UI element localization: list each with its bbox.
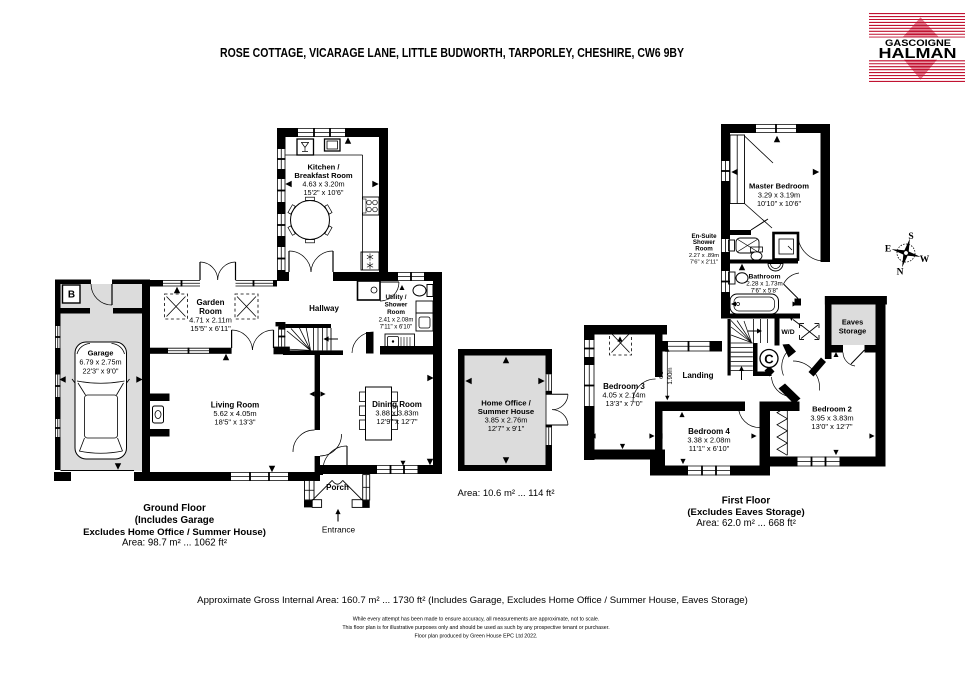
svg-text:18'5" x 13'3": 18'5" x 13'3" [214, 418, 255, 427]
svg-text:Room: Room [387, 309, 405, 316]
svg-text:Garage: Garage [88, 349, 114, 358]
svg-text:11'1" x 6'10": 11'1" x 6'10" [689, 444, 730, 453]
svg-text:Hallway: Hallway [309, 304, 339, 313]
svg-text:This floor plan is for illustr: This floor plan is for illustrative purp… [342, 625, 609, 631]
svg-text:10'10" x 10'6": 10'10" x 10'6" [757, 199, 801, 208]
svg-text:7'11" x 6'10": 7'11" x 6'10" [380, 325, 412, 331]
svg-text:Area: 98.7 m² ... 1062 ft²: Area: 98.7 m² ... 1062 ft² [122, 538, 228, 549]
svg-text:(Includes Garage: (Includes Garage [135, 515, 215, 526]
svg-text:W: W [920, 255, 930, 265]
svg-text:HALMAN: HALMAN [879, 46, 957, 62]
svg-text:E: E [885, 245, 891, 255]
svg-text:22'3" x 9'0": 22'3" x 9'0" [83, 366, 119, 375]
svg-text:12'7" x 9'1": 12'7" x 9'1" [488, 424, 525, 433]
svg-text:2.41 x 2.08m: 2.41 x 2.08m [379, 318, 414, 324]
svg-text:15'5" x 6'11": 15'5" x 6'11" [190, 324, 231, 333]
svg-text:Floor plan produced by Green H: Floor plan produced by Green House EPC L… [414, 633, 537, 639]
svg-text:Approximate Gross Internal Are: Approximate Gross Internal Area: 160.7 m… [197, 595, 748, 606]
svg-text:First Floor: First Floor [722, 496, 771, 507]
svg-text:Storage: Storage [839, 327, 867, 336]
svg-text:While every attempt has been m: While every attempt has been made to ens… [353, 617, 600, 623]
svg-text:Eaves: Eaves [842, 318, 863, 327]
svg-text:6'3": 6'3" [659, 369, 665, 379]
svg-text:Landing: Landing [682, 371, 713, 380]
svg-text:Utility /: Utility / [386, 294, 407, 301]
svg-text:B: B [68, 290, 75, 301]
svg-text:1.90m: 1.90m [667, 367, 674, 384]
svg-text:Entrance: Entrance [322, 525, 356, 535]
svg-text:Area: 10.6 m² ... 114 ft²: Area: 10.6 m² ... 114 ft² [458, 488, 555, 499]
svg-text:Bedroom 2: Bedroom 2 [812, 405, 852, 414]
svg-text:Excludes Home Office / Summer: Excludes Home Office / Summer House) [83, 527, 266, 538]
svg-text:12'9" x 12'7": 12'9" x 12'7" [376, 417, 417, 426]
svg-text:S: S [908, 232, 913, 242]
svg-text:13'0" x 12'7": 13'0" x 12'7" [811, 422, 852, 431]
svg-text:Garden: Garden [196, 298, 224, 307]
svg-text:13'3" x 7'0": 13'3" x 7'0" [606, 399, 643, 408]
svg-text:ROSE COTTAGE, VICARAGE LANE, L: ROSE COTTAGE, VICARAGE LANE, LITTLE BUDW… [220, 46, 685, 60]
svg-text:6.79 x 2.75m: 6.79 x 2.75m [79, 358, 121, 367]
svg-text:Porch: Porch [326, 483, 349, 492]
svg-text:N: N [897, 268, 904, 278]
svg-text:Ground Floor: Ground Floor [143, 503, 206, 514]
svg-text:W/D: W/D [781, 329, 794, 336]
svg-text:Area: 62.0 m² ... 668 ft²: Area: 62.0 m² ... 668 ft² [696, 518, 796, 529]
svg-text:C: C [764, 351, 774, 366]
svg-text:Master Bedroom: Master Bedroom [749, 182, 809, 191]
svg-text:15'2" x 10'6": 15'2" x 10'6" [303, 188, 343, 197]
svg-text:Shower: Shower [385, 302, 408, 309]
svg-text:7'6" x 2'11": 7'6" x 2'11" [690, 259, 718, 265]
svg-text:(Excludes Eaves Storage): (Excludes Eaves Storage) [687, 507, 804, 518]
svg-text:2.27 x .89m: 2.27 x .89m [689, 253, 719, 259]
svg-text:7'6" x 5'8": 7'6" x 5'8" [751, 287, 779, 294]
svg-text:Room: Room [695, 246, 713, 253]
svg-text:Bathroom: Bathroom [748, 274, 780, 281]
